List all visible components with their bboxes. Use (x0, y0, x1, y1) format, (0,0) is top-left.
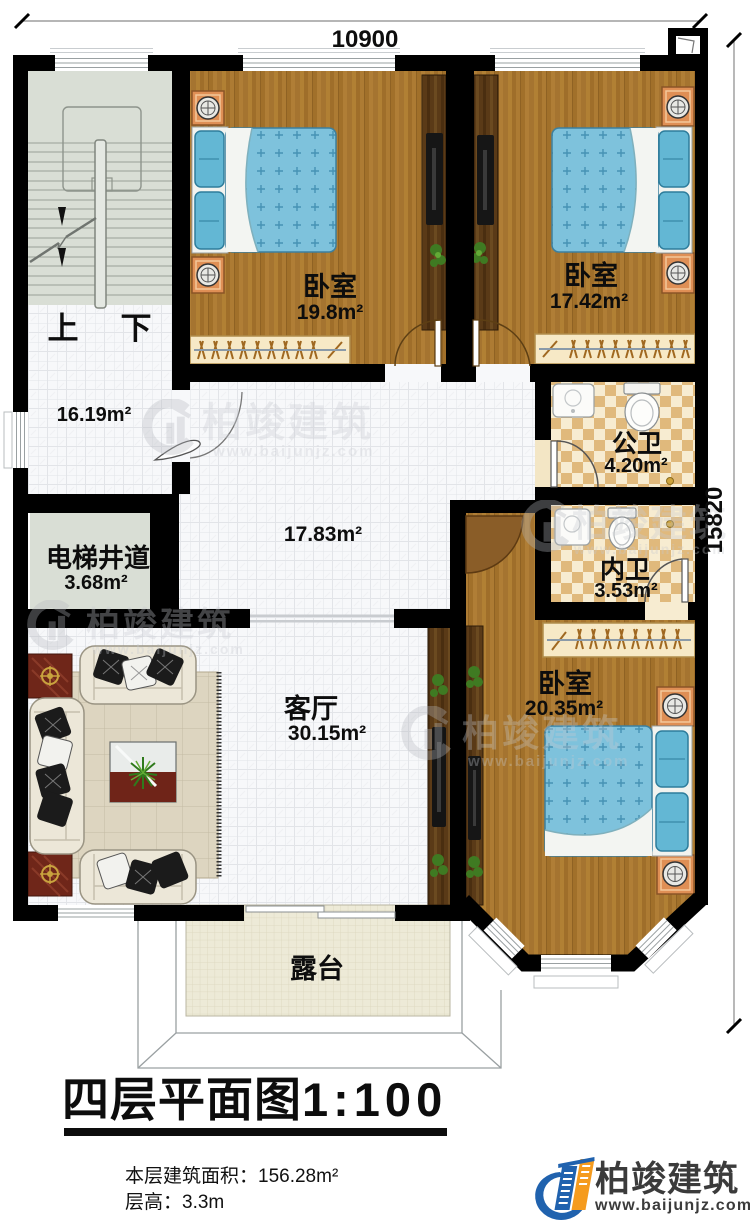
svg-text:上: 上 (48, 311, 79, 346)
svg-text:露台: 露台 (290, 953, 344, 984)
svg-text:柏竣建筑: 柏竣建筑 (86, 605, 234, 644)
svg-text:19.8m²: 19.8m² (297, 301, 364, 324)
svg-text:16.19m²: 16.19m² (57, 404, 132, 426)
svg-text:10900: 10900 (332, 26, 399, 53)
svg-text:电梯井道: 电梯井道 (46, 543, 150, 573)
svg-text:客厅: 客厅 (284, 693, 338, 724)
svg-text:www.baijunjz.com: www.baijunjz.com (91, 641, 245, 657)
svg-text:卧室: 卧室 (564, 260, 618, 291)
svg-text:17.83m²: 17.83m² (284, 523, 362, 546)
svg-text:www.baijunjz.com: www.baijunjz.com (467, 753, 629, 770)
svg-text:4.20m²: 4.20m² (604, 455, 668, 477)
svg-text:15820: 15820 (701, 487, 728, 554)
svg-text:卧室: 卧室 (303, 271, 357, 302)
svg-text:3.68m²: 3.68m² (64, 572, 128, 594)
svg-text:www.baijunjz.com: www.baijunjz.com (594, 1197, 750, 1214)
svg-text:公卫: 公卫 (612, 430, 662, 458)
svg-text:柏竣建筑: 柏竣建筑 (202, 401, 374, 445)
svg-text:层高：3.3m: 层高：3.3m (125, 1191, 224, 1213)
svg-text:17.42m²: 17.42m² (550, 290, 628, 313)
svg-text:30.15m²: 30.15m² (288, 722, 366, 745)
svg-text:3.53m²: 3.53m² (594, 580, 658, 602)
svg-text:四层平面图1:100: 四层平面图1:100 (62, 1073, 447, 1126)
svg-text:www.baijunjz.com: www.baijunjz.com (212, 443, 374, 460)
svg-text:本层建筑面积：156.28m²: 本层建筑面积：156.28m² (125, 1165, 338, 1187)
svg-text:卧室: 卧室 (538, 668, 592, 699)
svg-text:柏竣建筑: 柏竣建筑 (595, 1159, 739, 1199)
svg-text:下: 下 (121, 311, 152, 346)
svg-text:柏竣建筑: 柏竣建筑 (462, 712, 622, 754)
